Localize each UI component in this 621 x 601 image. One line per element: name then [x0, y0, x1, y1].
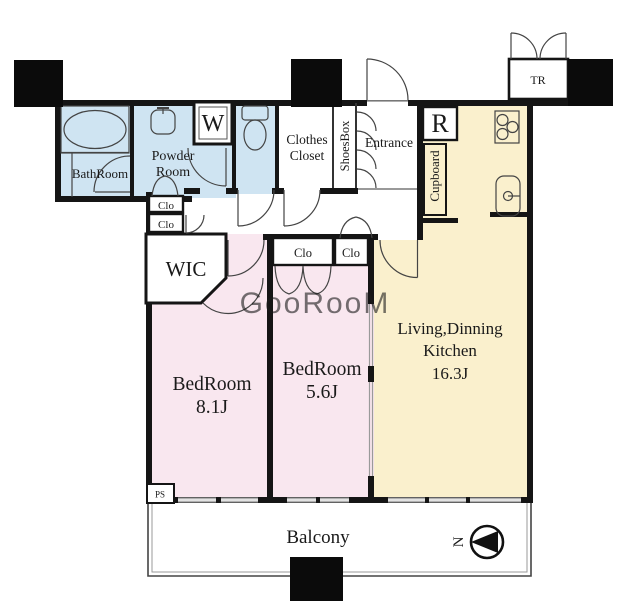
floor-plan: N BathRoom Powder Room W Clothes Closet … — [0, 0, 621, 601]
pillar-top-right — [568, 59, 613, 106]
bedroom1-size: 8.1J — [196, 397, 228, 418]
balcony-label: Balcony — [286, 527, 350, 548]
hall-closet-door-arc — [186, 215, 204, 233]
pillar-top-left — [14, 60, 63, 107]
ldk-label-1: Living,Dinning — [397, 319, 503, 338]
ldk-label-2: Kitchen — [423, 341, 477, 360]
hallway-closet-label: Clo — [342, 246, 360, 260]
bedroom2-closet-label: Clo — [294, 246, 312, 260]
clothes-closet-door-arc — [284, 190, 320, 226]
trunk-room-door-arcs — [511, 33, 566, 59]
washer-label: W — [202, 111, 225, 137]
shoes-box-label: ShoesBox — [338, 120, 352, 171]
bedroom1-name: BedRoom — [172, 374, 251, 395]
clothes-closet-label-2: Closet — [290, 148, 325, 163]
bathroom-label: BathRoom — [72, 166, 128, 181]
pillar-top-center — [291, 59, 342, 107]
powder-room-label-1: Powder — [152, 149, 195, 164]
bedroom2-name: BedRoom — [282, 359, 361, 380]
pillar-bottom-center — [290, 557, 343, 601]
powder-room-label-2: Room — [156, 165, 190, 180]
toilet-door-arc — [238, 190, 274, 226]
bedroom2-size: 5.6J — [306, 382, 338, 403]
compass-north-label: N — [451, 536, 467, 547]
hall-closet-lower-label: Clo — [158, 219, 174, 231]
entrance-label: Entrance — [365, 135, 413, 150]
refrigerator-label: R — [431, 109, 449, 138]
watermark-text: GooRooM — [240, 287, 391, 320]
clothes-closet-label-1: Clothes — [286, 132, 327, 147]
floor-plan-canvas: N BathRoom Powder Room W Clothes Closet … — [0, 0, 621, 601]
living-floor — [374, 240, 422, 497]
cupboard-label: Cupboard — [427, 150, 442, 202]
hall-closet-upper-label: Clo — [158, 200, 174, 212]
pipe-space-label: PS — [155, 490, 165, 500]
compass-icon: N — [451, 526, 503, 558]
trunk-room-label: TR — [530, 73, 545, 87]
ldk-size: 16.3J — [432, 364, 469, 383]
wic-label: WIC — [166, 257, 207, 281]
shoesbox-door-arcs — [357, 112, 376, 188]
entrance-door-arc — [367, 59, 408, 100]
